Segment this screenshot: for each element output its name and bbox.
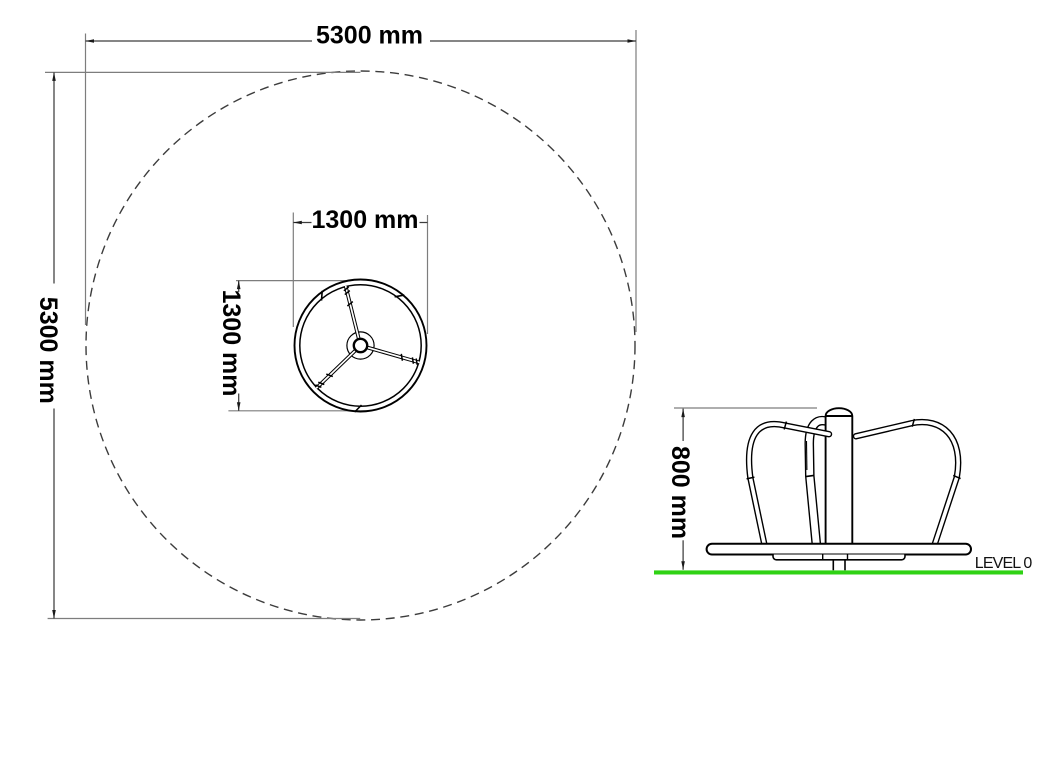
svg-text:800 mm: 800 mm bbox=[666, 446, 694, 539]
svg-text:LEVEL 0: LEVEL 0 bbox=[975, 555, 1033, 572]
svg-text:1300 mm: 1300 mm bbox=[311, 206, 418, 234]
svg-text:1300 mm: 1300 mm bbox=[217, 289, 245, 396]
svg-text:5300 mm: 5300 mm bbox=[316, 21, 423, 49]
svg-text:5300 mm: 5300 mm bbox=[34, 297, 62, 404]
